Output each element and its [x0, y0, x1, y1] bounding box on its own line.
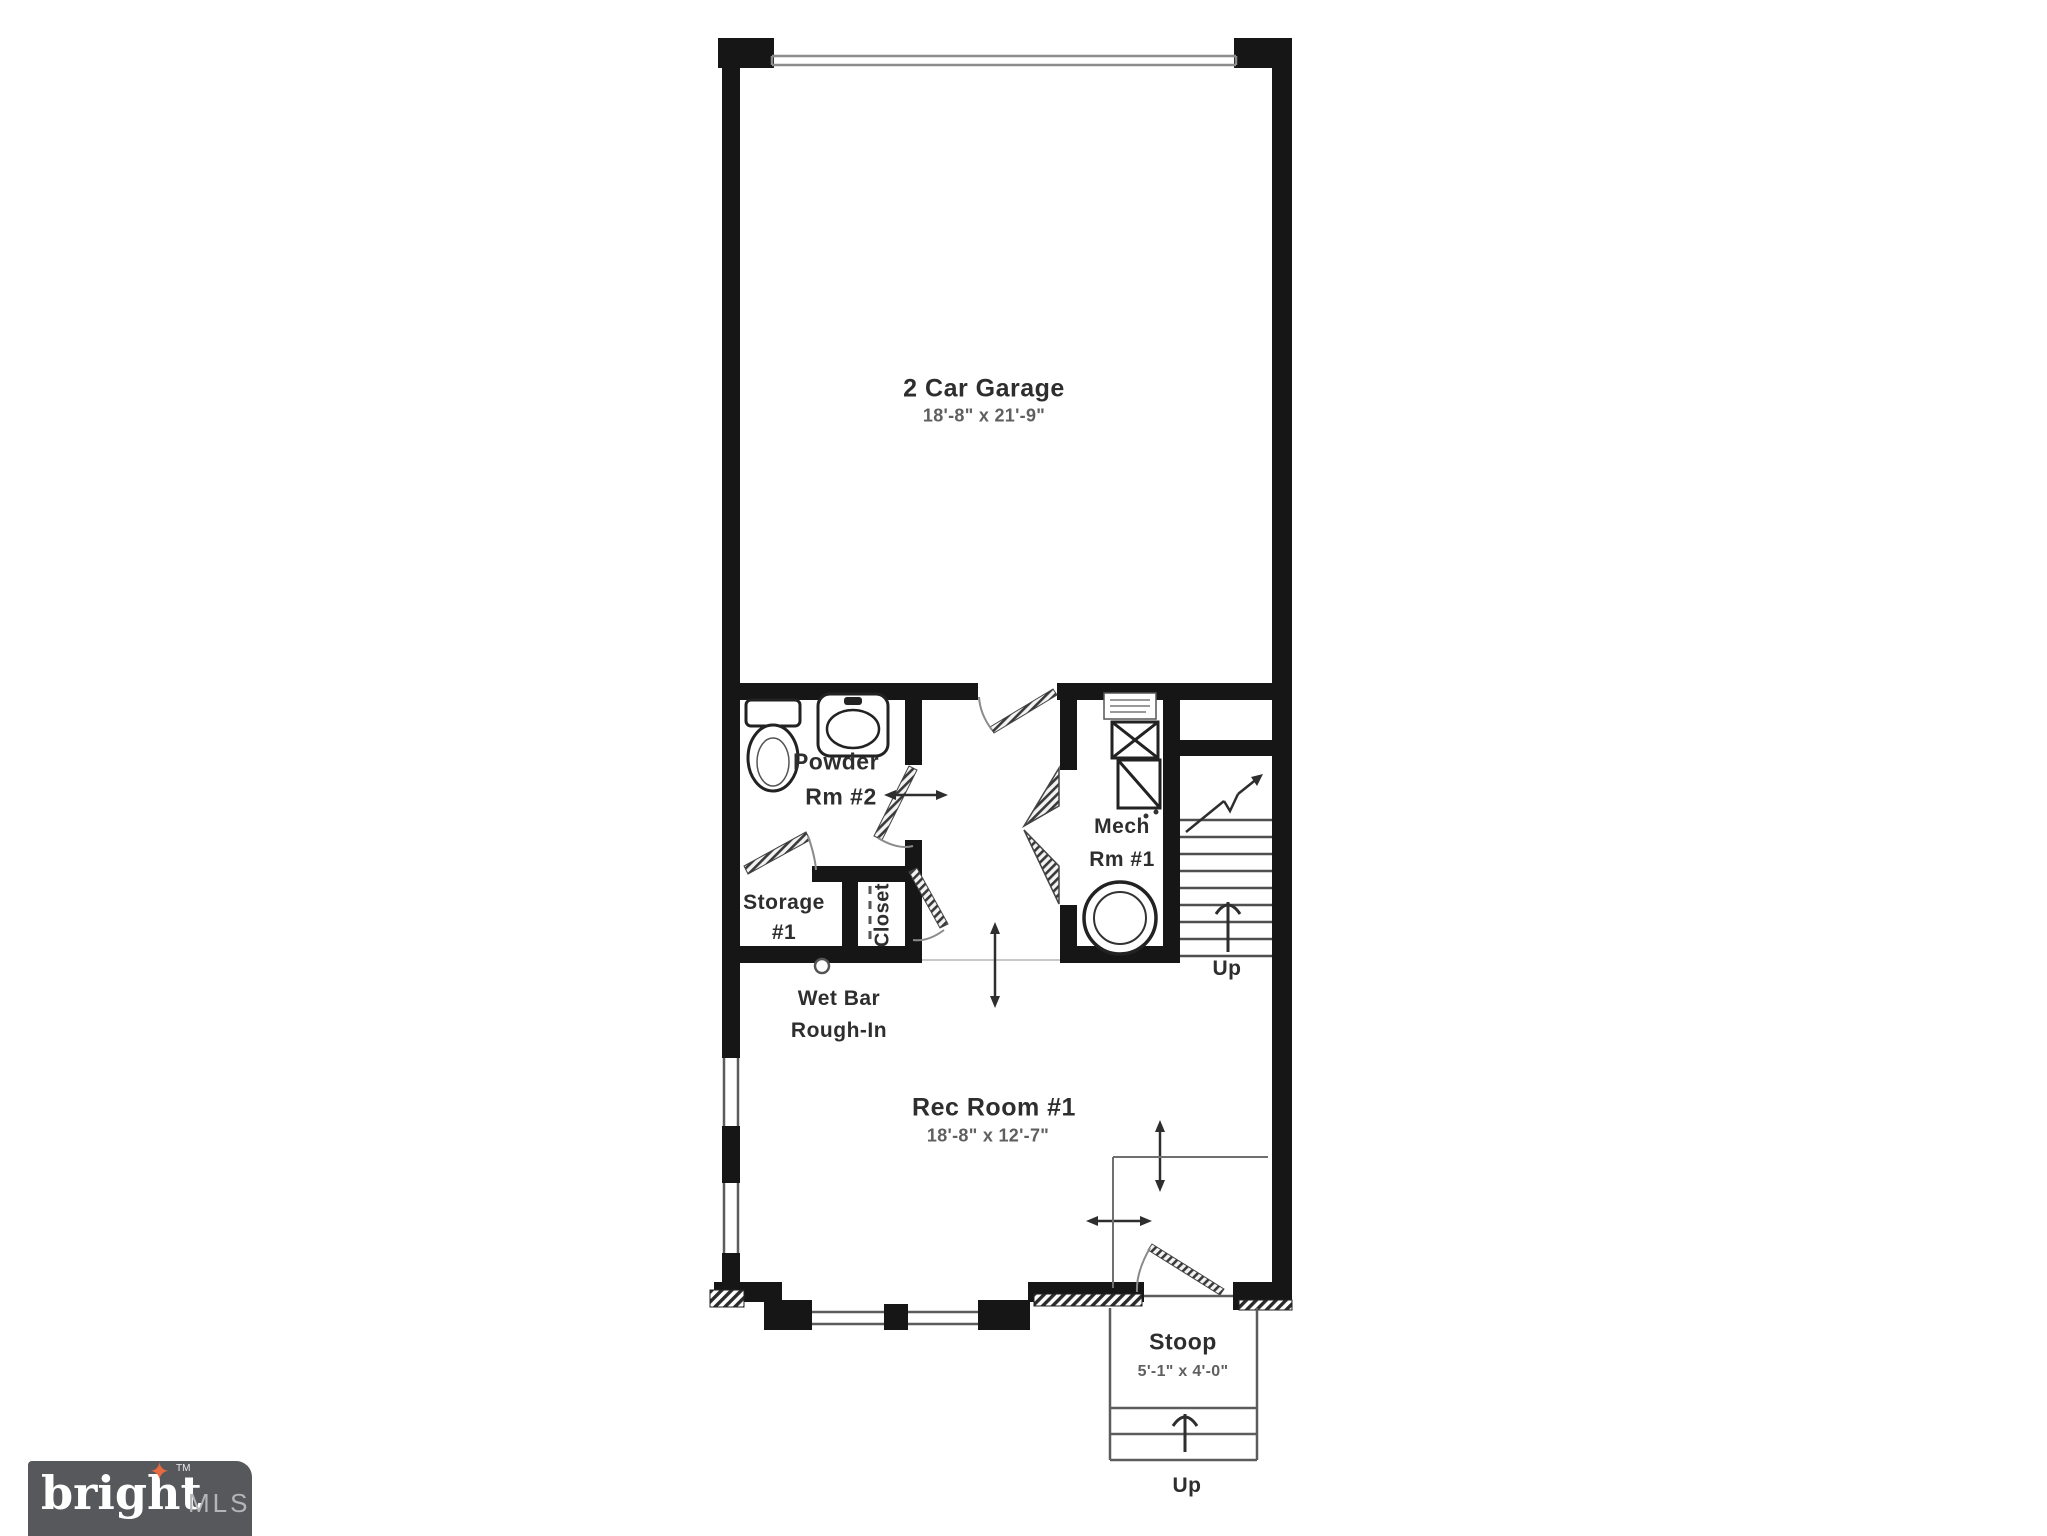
- door-leaf: [1024, 830, 1059, 904]
- rec-room-dims: 18'-8" x 12'-7": [927, 1126, 1049, 1147]
- bright-mls-logo: bright ✦ TM MLS: [28, 1461, 252, 1536]
- stoop-label: Stoop: [1149, 1329, 1217, 1356]
- sink-faucet: [844, 697, 862, 705]
- door-arc: [979, 697, 992, 730]
- wet-bar-label: Wet Bar: [798, 987, 880, 1011]
- sink-basin: [827, 710, 879, 748]
- bath-fixtures: [746, 694, 888, 791]
- stair-break-line: [1186, 774, 1263, 832]
- mech-room-label: Mech: [1094, 815, 1150, 839]
- stoop-dims: 5'-1" x 4'-0": [1138, 1363, 1229, 1381]
- door-leaf: [1148, 1244, 1224, 1295]
- garage-dims: 18'-8" x 21'-9": [923, 406, 1045, 427]
- stair-treads: [1180, 820, 1272, 956]
- powder-room-label2: Rm #2: [805, 784, 877, 811]
- brand-text: bright: [41, 1466, 202, 1520]
- floor-plan-page: 2 Car Garage 18'-8" x 21'-9" Powder Rm #…: [0, 0, 2047, 1536]
- mls-text: MLS: [188, 1488, 250, 1519]
- garage-label: 2 Car Garage: [903, 375, 1065, 404]
- door-leaf: [744, 832, 810, 874]
- closet-label: Closet: [872, 883, 895, 947]
- stairs-up-label: Up: [1213, 957, 1242, 981]
- powder-room-label: Powder: [793, 749, 879, 776]
- up-arrow: [1216, 902, 1240, 952]
- wet-bar-label2: Rough-In: [791, 1019, 887, 1043]
- toilet-tank: [746, 700, 800, 726]
- trademark-symbol: TM: [176, 1463, 190, 1474]
- door-leaf: [990, 689, 1057, 733]
- door-arc: [808, 836, 816, 870]
- floor-plan-drawing: [0, 0, 2047, 1536]
- sparkle-icon: ✦: [149, 1457, 170, 1486]
- storage-label2: #1: [772, 921, 796, 945]
- door-leaf: [1024, 768, 1059, 826]
- hvac-unit: [1112, 722, 1158, 758]
- storage-label: Storage: [743, 891, 825, 915]
- garage-door: [772, 56, 1236, 65]
- stairs: [1180, 774, 1272, 956]
- door-leaf: [874, 766, 917, 840]
- wet-bar-symbol: [815, 959, 829, 973]
- rec-room-label: Rec Room #1: [912, 1094, 1076, 1123]
- furnace-unit: [1118, 760, 1160, 808]
- mech-room-label2: Rm #1: [1089, 848, 1155, 872]
- stoop-up-label: Up: [1173, 1474, 1202, 1498]
